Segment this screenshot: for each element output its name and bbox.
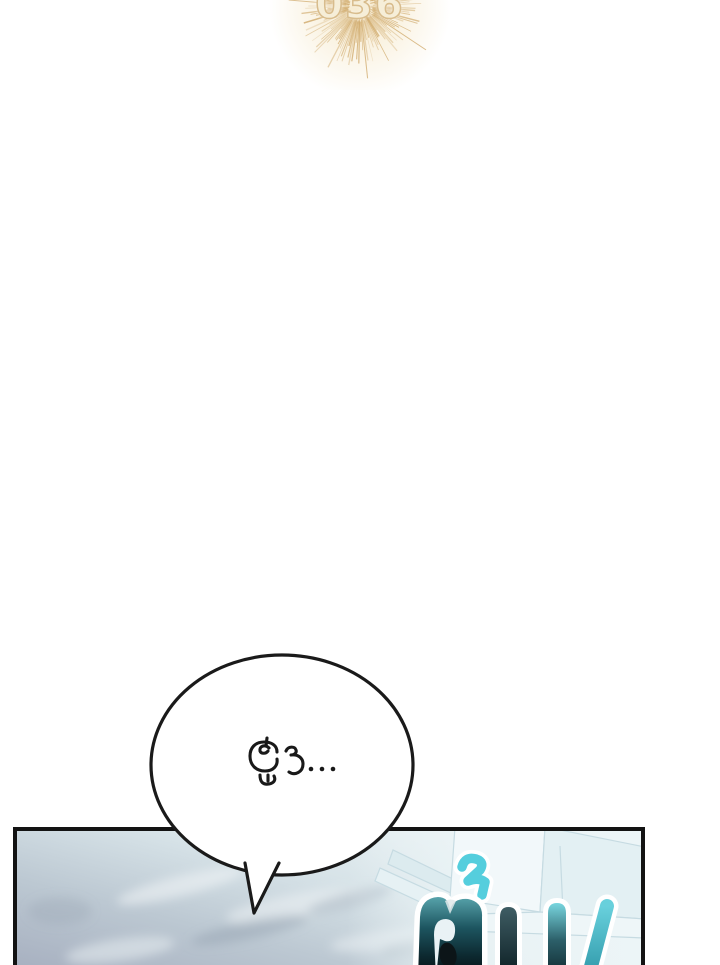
speech-bubble-shape bbox=[140, 648, 430, 938]
bubble-ellipse bbox=[151, 655, 413, 875]
nightstand-right-face bbox=[540, 831, 641, 919]
webtoon-page: 036 bbox=[0, 0, 720, 965]
chapter-badge: 036 bbox=[250, 0, 470, 100]
speech-bubble: ฮู่ว... bbox=[140, 648, 430, 938]
nightstand-left-face bbox=[450, 831, 545, 912]
chapter-number: 036 bbox=[250, 0, 470, 25]
